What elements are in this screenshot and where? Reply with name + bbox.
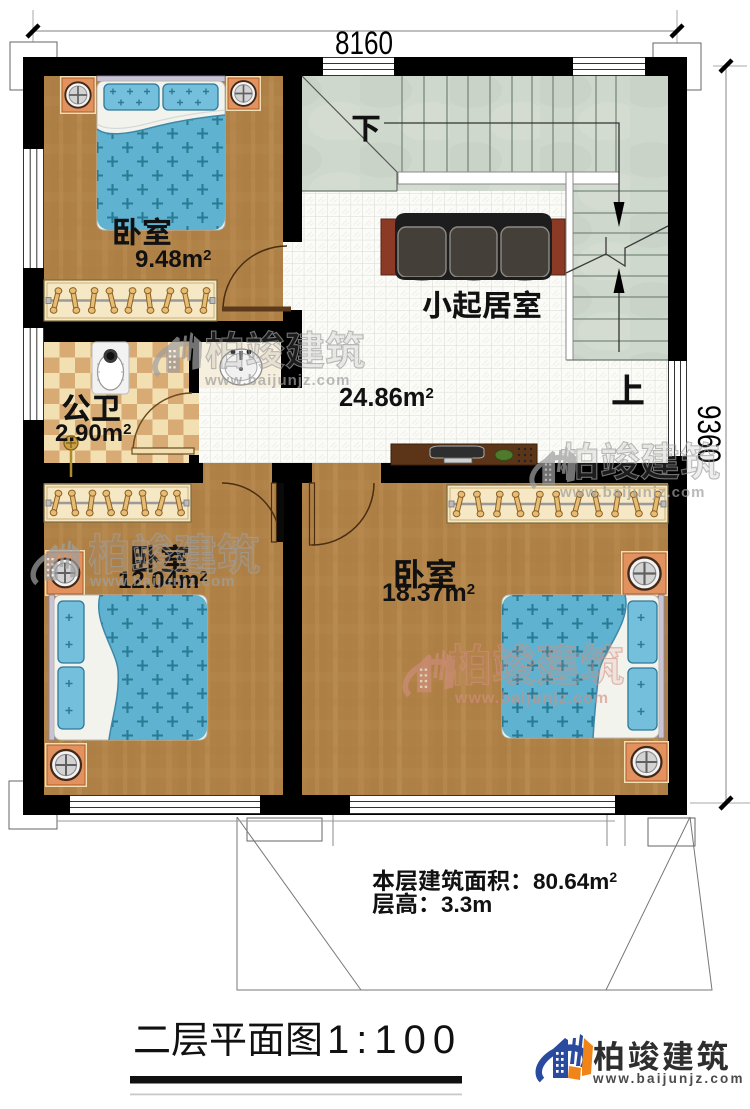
svg-text:www.baijunjz.com: www.baijunjz.com	[559, 484, 705, 501]
svg-text:www.baijunjz.com: www.baijunjz.com	[204, 372, 350, 389]
svg-text:2.90m2: 2.90m2	[55, 420, 131, 447]
svg-text:8160: 8160	[335, 25, 393, 61]
svg-text:3.3m: 3.3m	[441, 892, 492, 917]
svg-text:24.86m2: 24.86m2	[339, 384, 434, 412]
svg-text:1:100: 1:100	[327, 1018, 462, 1062]
svg-text:80.64m2: 80.64m2	[533, 869, 617, 894]
svg-text:www.baijunjz.com: www.baijunjz.com	[592, 1071, 745, 1086]
svg-text:9.48m2: 9.48m2	[135, 246, 211, 273]
svg-text:www.baijunjz.com: www.baijunjz.com	[454, 690, 609, 707]
svg-text:9360: 9360	[691, 405, 727, 463]
svg-text:18.37m2: 18.37m2	[382, 579, 475, 607]
svg-text:www.baijunjz.com: www.baijunjz.com	[89, 573, 235, 590]
